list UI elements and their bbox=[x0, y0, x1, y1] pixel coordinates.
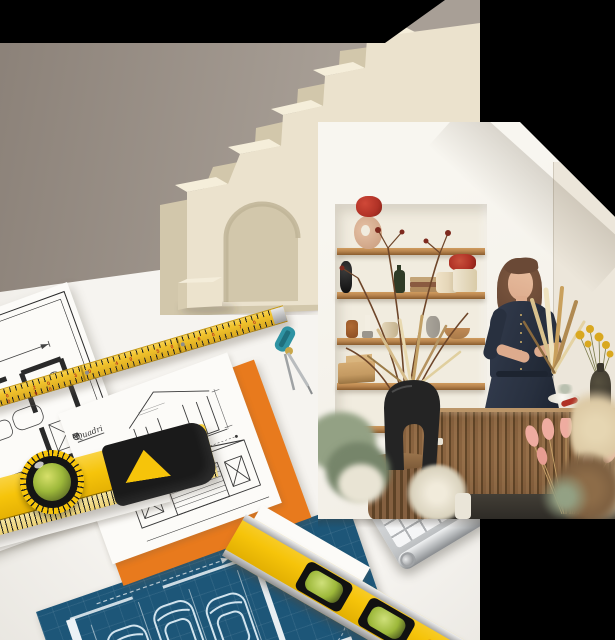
cap-triangle-cutout bbox=[121, 446, 171, 483]
green-sprigs bbox=[540, 474, 590, 519]
white-bloom-cluster bbox=[338, 464, 384, 504]
drafting-compass bbox=[268, 324, 324, 398]
vial-glass bbox=[33, 463, 71, 501]
dish-sprigs bbox=[554, 384, 576, 394]
craspedia-flowers bbox=[566, 318, 615, 378]
level-360-vial bbox=[20, 450, 84, 514]
model-block-side bbox=[178, 279, 187, 310]
white-vase bbox=[455, 493, 471, 519]
florist-photo bbox=[318, 122, 615, 519]
hero-collage: 2 50 mm Quadri 10 20 30 40 50 60 70 80 9… bbox=[0, 0, 615, 640]
inset-photo-shadow bbox=[318, 519, 480, 528]
